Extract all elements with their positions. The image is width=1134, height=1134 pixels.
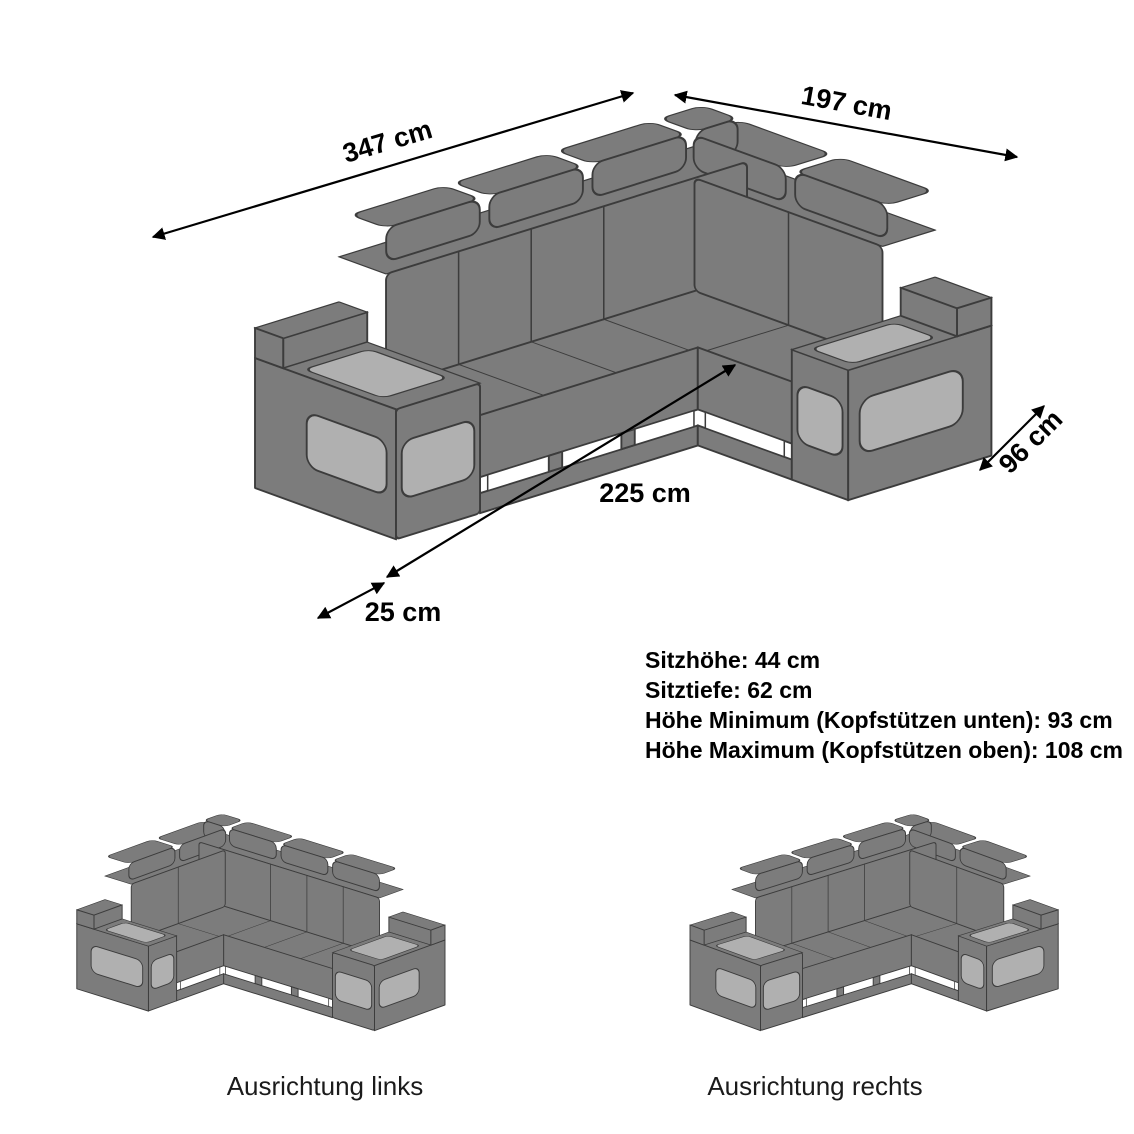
label-back-width: 347 cm — [339, 114, 435, 169]
spec-height-max: Höhe Maximum (Kopfstützen oben): 108 cm — [645, 737, 1123, 763]
diagram-canvas: 347 cm 197 cm 96 cm 225 cm 25 cm Sitzhöh… — [0, 0, 1134, 1134]
sofa-illustration-variant-left — [77, 814, 445, 1031]
spec-block: Sitzhöhe: 44 cm Sitztiefe: 62 cm Höhe Mi… — [645, 647, 1123, 763]
spec-seat-depth: Sitztiefe: 62 cm — [645, 677, 812, 703]
sofa-illustration-variant-right — [690, 814, 1058, 1031]
label-front-length: 225 cm — [599, 478, 691, 508]
spec-seat-height: Sitzhöhe: 44 cm — [645, 647, 820, 673]
caption-variant-right: Ausrichtung rechts — [707, 1071, 922, 1101]
spec-height-min: Höhe Minimum (Kopfstützen unten): 93 cm — [645, 707, 1113, 733]
dimension-diagram-page: 347 cm 197 cm 96 cm 225 cm 25 cm Sitzhöh… — [0, 0, 1134, 1134]
sofa-illustration-main — [255, 106, 991, 540]
label-right-depth: 96 cm — [993, 404, 1068, 479]
caption-variant-left: Ausrichtung links — [227, 1071, 424, 1101]
label-front-offset: 25 cm — [365, 597, 442, 627]
